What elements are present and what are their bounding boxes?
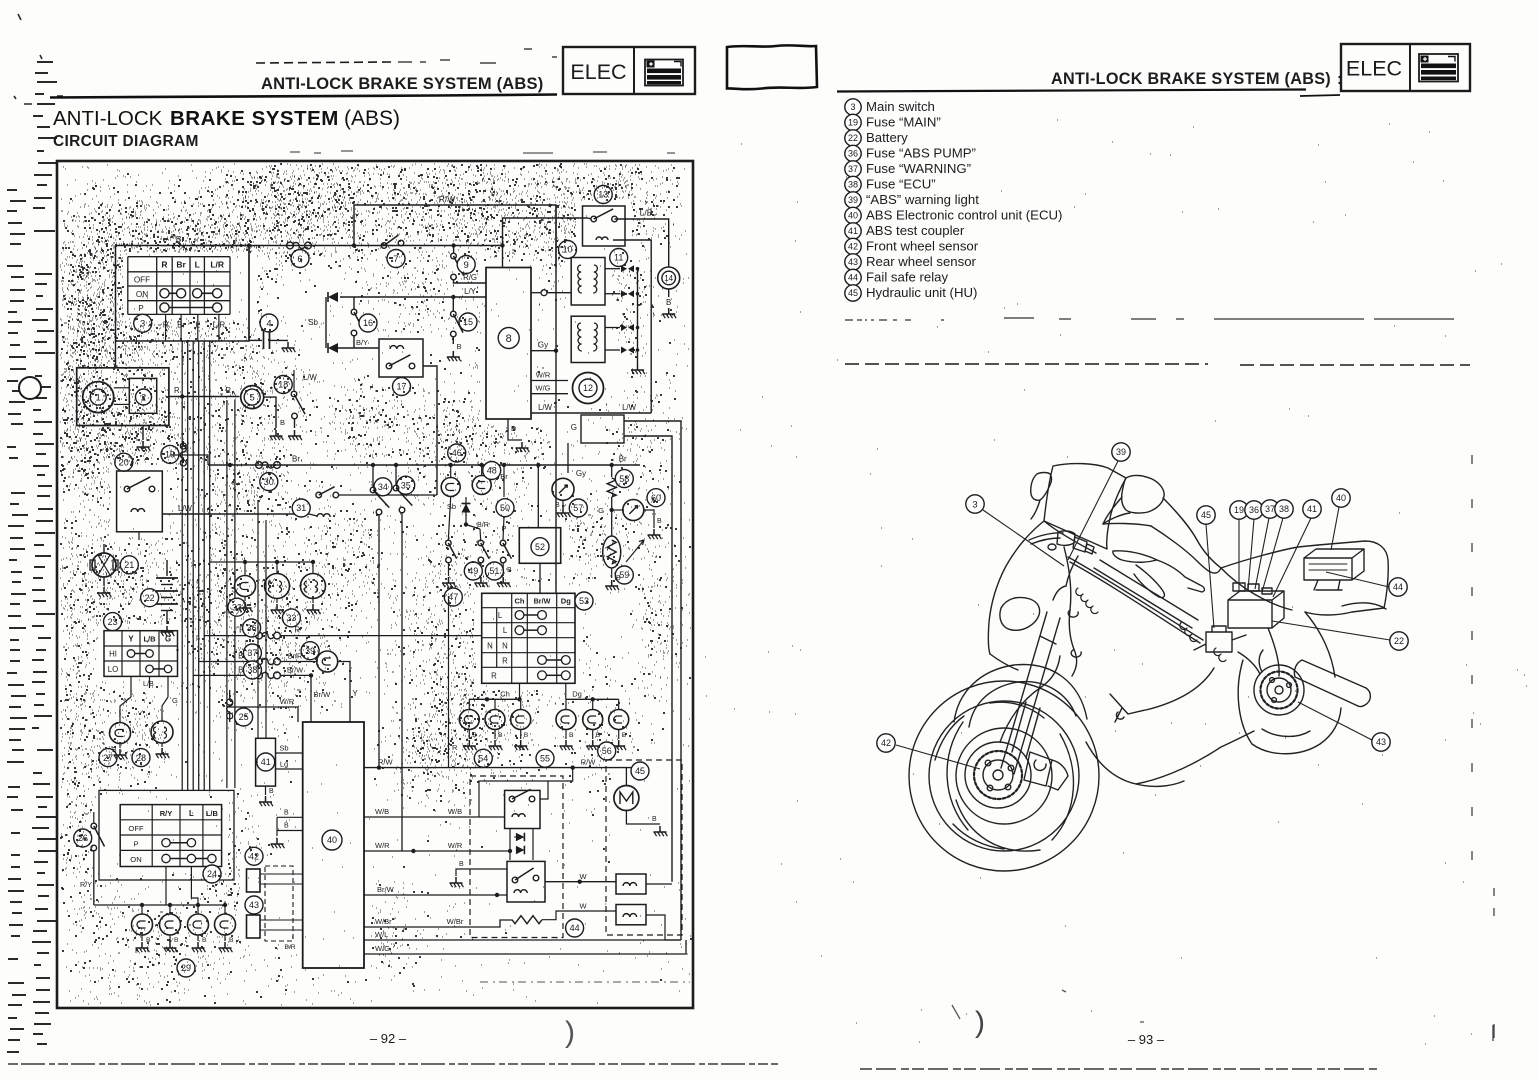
svg-text:29: 29 [181,963,191,973]
svg-text:ABS test coupler: ABS test coupler [866,223,965,238]
svg-text:55: 55 [540,754,550,764]
svg-text:ELEC: ELEC [570,60,626,84]
svg-text:B: B [174,937,179,944]
svg-text:R: R [225,386,231,395]
svg-text:P: P [133,840,138,849]
svg-text:Dg: Dg [572,689,582,698]
svg-text:ELEC: ELEC [1346,57,1402,81]
svg-text:W/R: W/R [280,697,295,706]
svg-text:R: R [491,672,497,681]
svg-text:Br: Br [176,260,186,270]
svg-text:L/W: L/W [538,403,553,412]
svg-text:45: 45 [1201,510,1211,520]
svg-text:B: B [569,732,574,739]
svg-text:W/R: W/R [375,841,390,850]
svg-text:Fuse “MAIN”: Fuse “MAIN” [866,115,941,130]
svg-text:3: 3 [140,319,145,330]
svg-text:B: B [280,418,285,427]
svg-text:19: 19 [1234,505,1244,515]
svg-text:49: 49 [468,566,478,576]
svg-text:39: 39 [848,195,858,205]
svg-text:Br/W: Br/W [287,665,303,674]
svg-text:B: B [457,342,462,351]
svg-text:34: 34 [378,482,388,492]
svg-text:22: 22 [1394,636,1404,646]
svg-text:W: W [579,872,587,881]
svg-text:12: 12 [583,383,593,393]
svg-text:44: 44 [570,923,580,933]
svg-text:36: 36 [247,623,257,633]
svg-text:Br/R: Br/R [288,652,302,661]
svg-text:N: N [502,642,508,651]
svg-text:OFF: OFF [134,275,150,284]
svg-text:Br: Br [292,455,300,464]
svg-text:“ABS” warning light: “ABS” warning light [866,192,979,207]
svg-text:Dg: Dg [561,597,571,606]
svg-text:B: B [524,732,529,739]
svg-text:R: R [502,657,508,666]
svg-text:W/B: W/B [448,807,462,816]
svg-text:43: 43 [848,257,858,267]
svg-text:36: 36 [848,149,858,159]
svg-text:BRAKE SYSTEM: BRAKE SYSTEM [170,107,339,130]
svg-text:B: B [666,298,671,307]
svg-text:L/W: L/W [622,403,637,412]
svg-text:B: B [269,788,274,795]
svg-text:30: 30 [264,477,274,487]
svg-text:G: G [598,506,604,515]
svg-text:37: 37 [1265,504,1275,514]
svg-text:B: B [284,823,289,830]
svg-text:31: 31 [296,503,306,513]
svg-text:37: 37 [848,164,858,174]
svg-text:38: 38 [848,180,858,190]
svg-text:Fail safe relay: Fail safe relay [866,270,948,285]
svg-text:ANTI-LOCK: ANTI-LOCK [53,107,163,130]
svg-text:R: R [452,743,458,752]
svg-text:42: 42 [848,242,858,252]
svg-text:G: G [571,423,577,432]
svg-text:41: 41 [848,226,858,236]
svg-text:51: 51 [489,566,499,576]
svg-text:38: 38 [247,665,257,675]
svg-text:10: 10 [562,245,572,255]
svg-text:R/Y: R/Y [160,809,173,818]
svg-text:46: 46 [452,448,462,458]
svg-text:3: 3 [850,102,855,112]
svg-text:R/W: R/W [581,758,597,767]
svg-text:17: 17 [396,382,406,392]
svg-text:40: 40 [1336,493,1346,503]
svg-text:58: 58 [619,474,629,484]
svg-text:44: 44 [1393,582,1403,592]
svg-text:): ) [565,1016,575,1049]
svg-text:45: 45 [848,288,858,298]
svg-text:42: 42 [249,852,259,862]
svg-text:7: 7 [393,254,398,265]
svg-text:Front wheel sensor: Front wheel sensor [866,239,979,254]
svg-text:Battery: Battery [866,130,908,145]
svg-text:Main switch: Main switch [866,99,935,114]
svg-text:8: 8 [506,333,512,345]
svg-text:Y: Y [353,689,359,698]
svg-text:– 93 –: – 93 – [1128,1032,1165,1047]
svg-text:(ABS): (ABS) [344,107,400,130]
svg-text:19: 19 [848,118,858,128]
svg-text:G: G [165,635,171,644]
svg-text:W/G: W/G [375,944,390,953]
svg-text:B: B [555,502,560,509]
svg-text:56: 56 [602,746,612,756]
svg-text:Fuse “ECU”: Fuse “ECU” [866,177,936,192]
svg-text:Ch: Ch [500,689,510,698]
svg-text:Hydraulic unit (HU): Hydraulic unit (HU) [866,285,977,300]
svg-text:25: 25 [239,712,249,722]
svg-text:L/Y: L/Y [464,287,477,296]
svg-text:ANTI-LOCK BRAKE SYSTEM (ABS): ANTI-LOCK BRAKE SYSTEM (ABS) [261,75,543,93]
svg-text:R/Y: R/Y [80,880,92,889]
svg-text:43: 43 [1376,737,1386,747]
svg-text:45: 45 [635,766,645,776]
svg-text:– 92 –: – 92 – [370,1031,407,1046]
svg-text:B: B [459,861,464,868]
svg-text:Gy: Gy [576,469,586,478]
svg-text:B: B [284,809,289,816]
svg-text:CIRCUIT DIAGRAM: CIRCUIT DIAGRAM [53,133,199,150]
svg-text:23: 23 [108,617,118,627]
svg-text:B: B [112,747,117,754]
svg-text:Sb: Sb [308,318,318,327]
svg-text:Fuse “ABS PUMP”: Fuse “ABS PUMP” [866,146,976,161]
svg-text:40: 40 [327,835,337,845]
svg-text:B: B [229,937,234,944]
svg-text:W/G: W/G [536,384,551,393]
svg-text:R: R [294,626,300,635]
svg-text:36: 36 [1249,505,1259,515]
svg-text:52: 52 [535,542,545,552]
svg-text:Ch: Ch [515,597,525,606]
svg-text:ON: ON [130,855,141,864]
svg-text:Gy: Gy [538,341,548,350]
svg-text:B: B [202,937,207,944]
svg-text:W/B: W/B [375,807,389,816]
svg-text:W/Br: W/Br [375,917,392,926]
svg-text:40: 40 [848,211,858,221]
svg-text:Rear wheel sensor: Rear wheel sensor [866,254,977,269]
svg-text:L: L [195,260,200,270]
svg-text:48: 48 [487,466,497,476]
svg-text:24: 24 [207,869,217,879]
svg-text:W/R: W/R [448,841,463,850]
svg-text:R/W: R/W [378,758,394,767]
svg-text:4: 4 [266,318,271,329]
svg-text:W: W [579,902,587,911]
svg-text:Y: Y [128,635,134,644]
svg-text:B/Y: B/Y [356,338,368,347]
svg-text:P: P [138,304,144,313]
svg-text:B: B [657,518,662,525]
svg-text:11: 11 [614,253,623,263]
svg-text:Br/W: Br/W [534,597,551,606]
svg-text:Br: Br [619,455,627,464]
svg-text:L/W: L/W [303,373,318,382]
svg-text:18: 18 [278,380,288,390]
svg-text:L/W: L/W [178,504,193,513]
svg-text:3: 3 [972,499,977,510]
svg-text:41: 41 [1307,504,1317,514]
svg-text:Sb: Sb [279,744,288,753]
svg-text:Sb: Sb [447,502,456,511]
svg-text:ABS Electronic control unit (E: ABS Electronic control unit (ECU) [866,208,1062,223]
svg-text:22: 22 [848,133,858,143]
svg-text:): ) [975,1006,985,1039]
svg-text:42: 42 [881,738,891,748]
svg-text:R: R [174,386,180,395]
svg-text:OFF: OFF [128,824,144,833]
svg-text:L: L [189,809,194,818]
svg-text:39: 39 [1116,447,1126,457]
svg-text:41: 41 [261,757,271,767]
svg-text:44: 44 [848,273,858,283]
svg-text:16: 16 [363,318,373,328]
svg-text:R/G: R/G [463,273,477,282]
svg-text:59: 59 [619,570,629,580]
svg-text:14: 14 [664,274,673,283]
svg-text:ANTI-LOCK BRAKE SYSTEM (ABS): ANTI-LOCK BRAKE SYSTEM (ABS) [1051,70,1331,88]
svg-text:35: 35 [401,480,411,490]
svg-text:38: 38 [1279,504,1289,514]
svg-text:43: 43 [249,900,259,910]
svg-text:HI: HI [109,650,117,659]
svg-text:5: 5 [250,393,255,404]
svg-text:W/Br: W/Br [447,917,464,926]
svg-text:Fuse “WARNING”: Fuse “WARNING” [866,161,971,176]
svg-text:L: L [503,626,508,635]
svg-text:G: G [172,696,178,705]
svg-text:L/B: L/B [143,635,156,644]
svg-text:9: 9 [464,260,469,271]
svg-text:LO: LO [108,665,118,674]
svg-text:L/R: L/R [210,260,224,270]
svg-text:L: L [498,611,503,620]
svg-text:B: B [652,816,657,823]
